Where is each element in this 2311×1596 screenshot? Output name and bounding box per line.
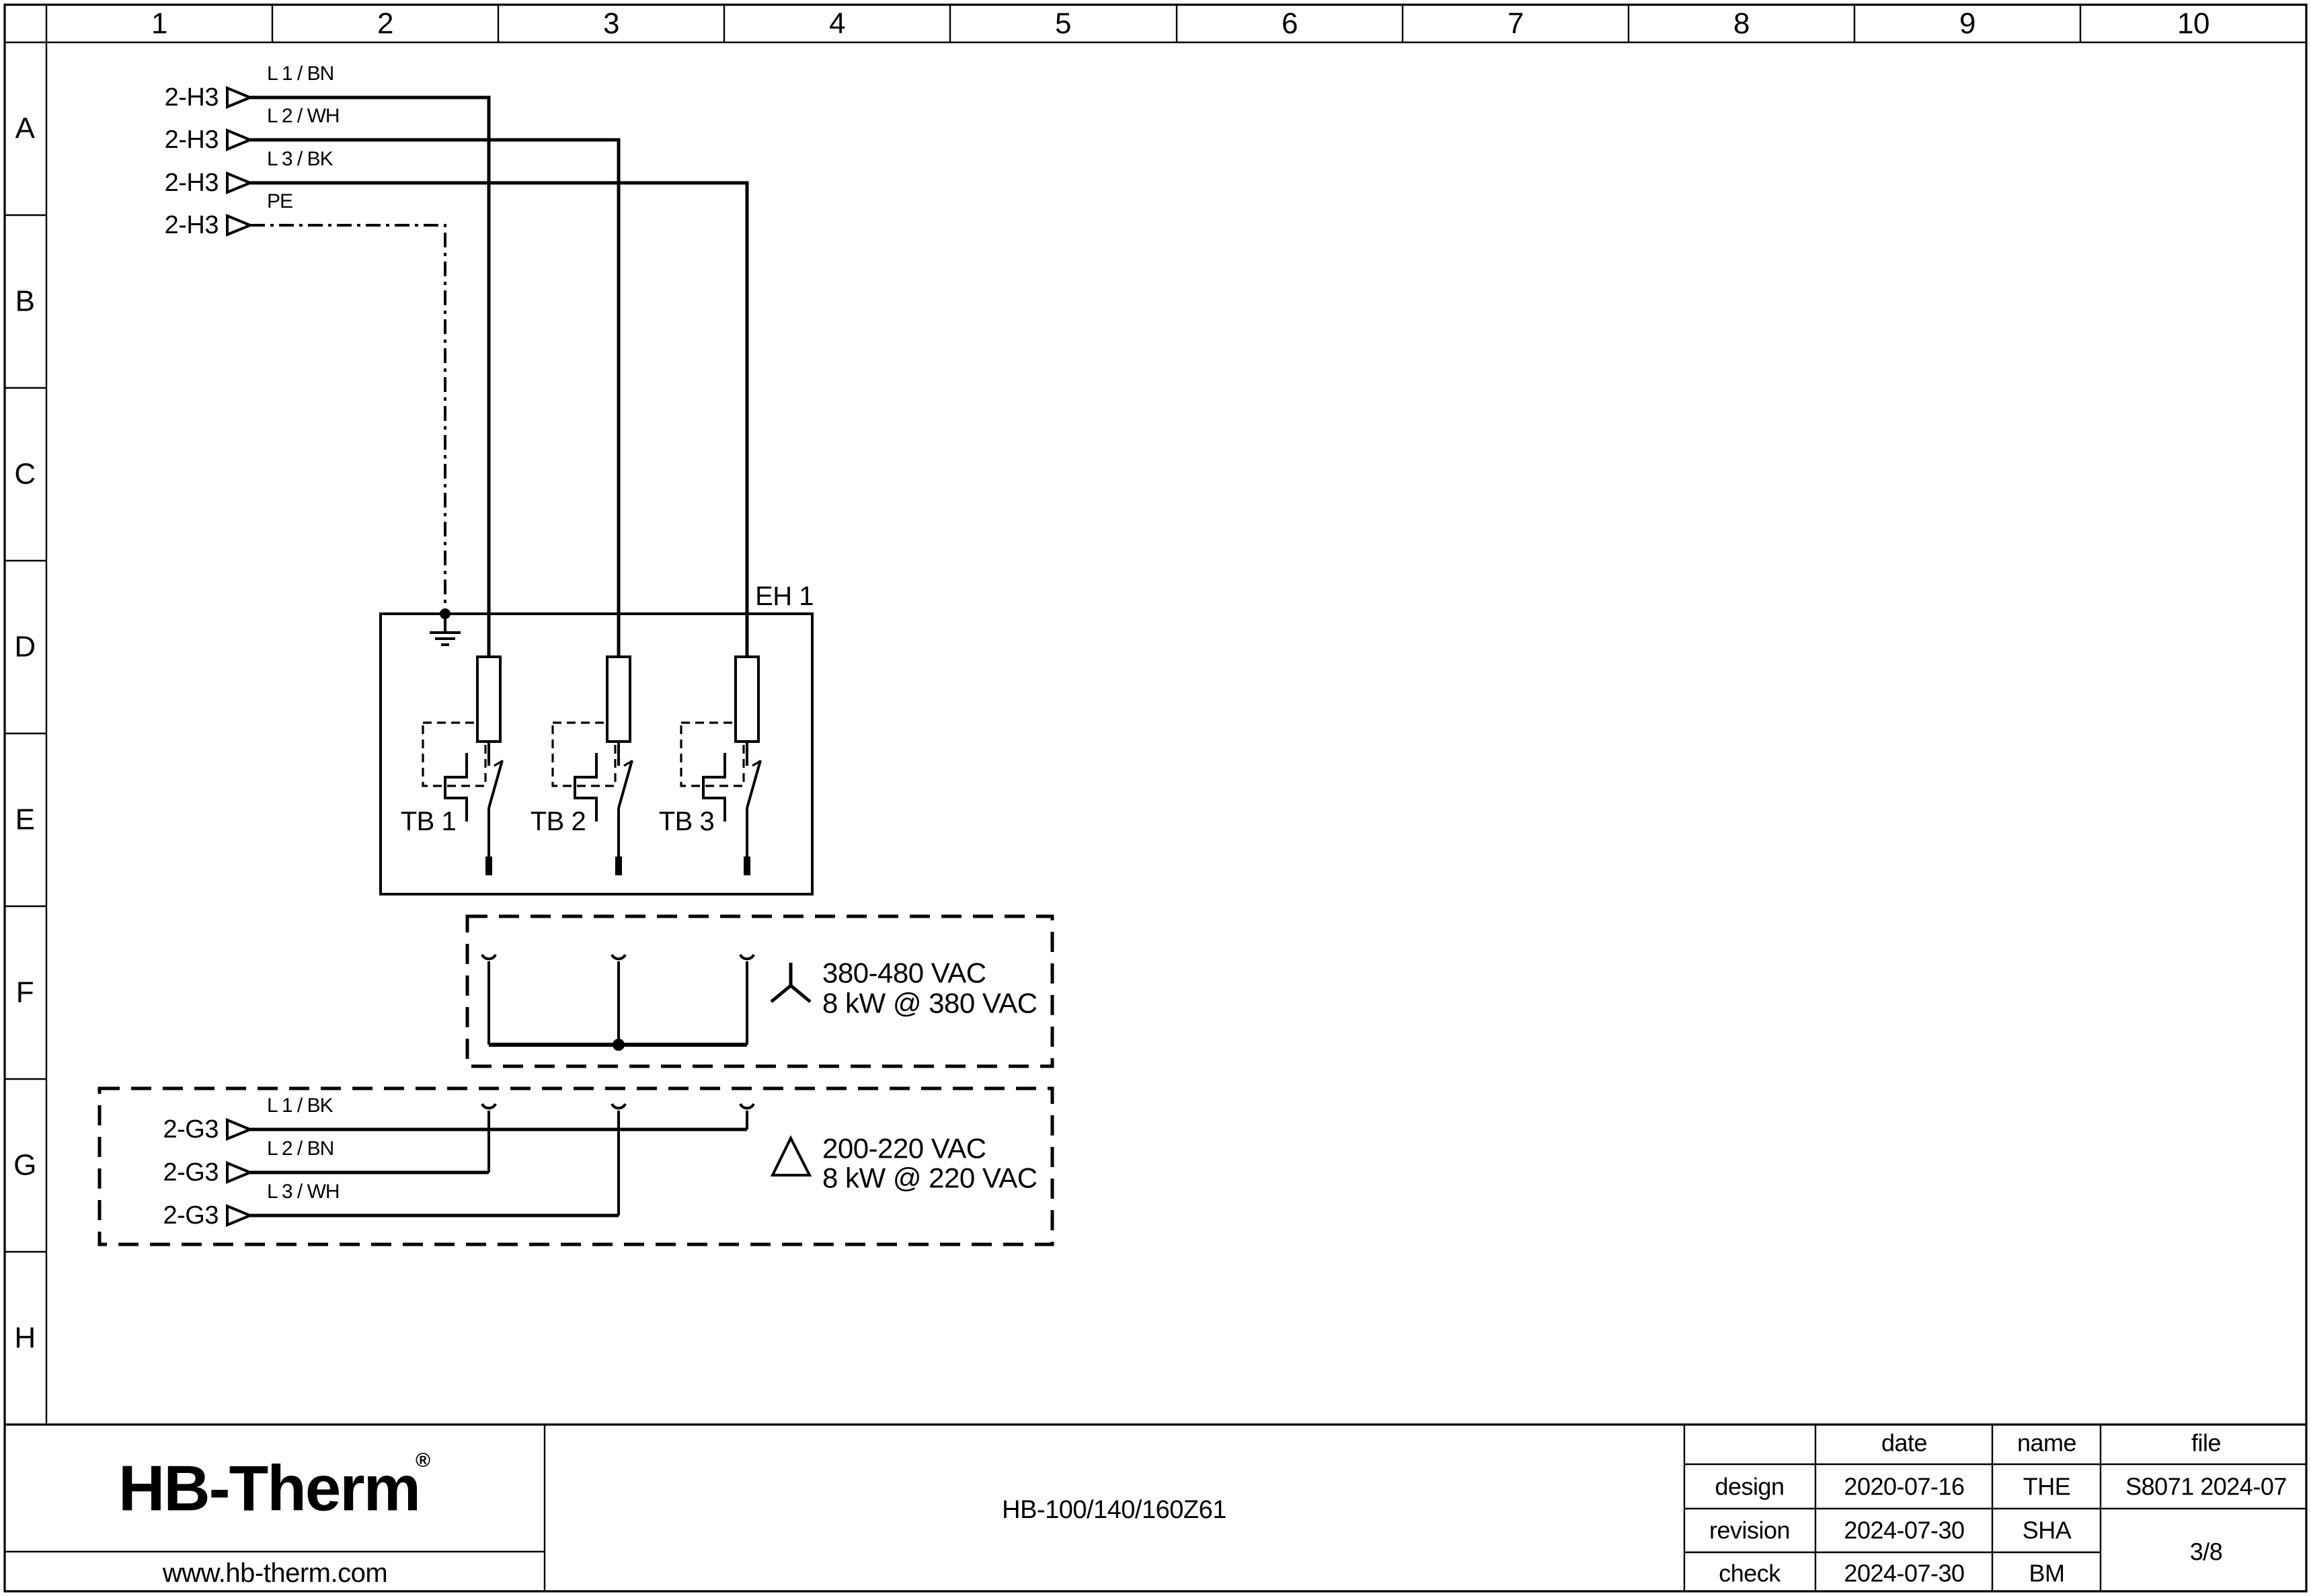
revision-date: 2024-07-30 <box>1844 1517 1964 1544</box>
feed-pe: 2-H3 PE <box>165 190 445 614</box>
drawing-title: HB-100/140/160Z61 <box>1002 1496 1226 1524</box>
col-label-6: 6 <box>1282 7 1298 40</box>
tb2-terminal <box>615 856 622 875</box>
heater-box-label: EH 1 <box>755 582 814 611</box>
delta-power: 8 kW @ 220 VAC <box>822 1162 1037 1194</box>
col-label-9: 9 <box>1959 7 1975 40</box>
table-header-file: file <box>2191 1429 2221 1457</box>
col-label-5: 5 <box>1055 7 1071 40</box>
tb3-switch-blade <box>747 760 760 808</box>
delta-feed-l1-label: L 1 / BK <box>267 1094 334 1117</box>
table-header-date: date <box>1881 1429 1927 1457</box>
check-date: 2024-07-30 <box>1844 1560 1964 1587</box>
tb2-label: TB 2 <box>531 807 586 836</box>
design-label: design <box>1715 1473 1784 1501</box>
design-date: 2020-07-16 <box>1844 1473 1964 1501</box>
ground-icon <box>430 614 461 645</box>
heater-element-1 <box>477 657 500 742</box>
socket-icon <box>612 955 625 959</box>
feed-l3-label: L 3 / BK <box>267 148 334 170</box>
connector-arrow-icon <box>227 173 250 192</box>
star-connection-box: 380-480 VAC 8 kW @ 380 VAC <box>467 916 1052 1066</box>
row-label-F: F <box>16 976 34 1009</box>
col-label-3: 3 <box>603 7 619 40</box>
table-row-check: check 2024-07-30 BM <box>1719 1560 2064 1587</box>
logo-text: HB-Therm <box>118 1453 420 1525</box>
company-logo: HB-Therm ® <box>118 1449 430 1525</box>
socket-icon <box>740 955 754 959</box>
schematic-canvas: 1 2 3 4 5 6 7 8 9 10 A B C D E F G H 2-H… <box>0 0 2311 1596</box>
wire-l2 <box>250 140 619 657</box>
check-label: check <box>1719 1560 1781 1587</box>
wye-icon <box>771 963 810 1002</box>
thermal-breaker-1: TB 1 <box>401 657 502 875</box>
heater-element-2 <box>607 657 630 742</box>
table-row-revision: revision 2024-07-30 SHA <box>1709 1517 2072 1544</box>
company-website: www.hb-therm.com <box>162 1558 387 1588</box>
tb3-terminal <box>744 856 750 875</box>
registered-mark-icon: ® <box>416 1449 430 1472</box>
delta-feed-l1-source: 2-G3 <box>163 1115 219 1144</box>
column-labels: 1 2 3 4 5 6 7 8 9 10 <box>151 7 2209 40</box>
thermal-breaker-2: TB 2 <box>531 657 632 875</box>
table-header-name: name <box>2017 1429 2076 1457</box>
row-label-A: A <box>15 112 36 145</box>
delta-feed-l2-label: L 2 / BN <box>267 1138 334 1160</box>
connector-arrow-icon <box>227 130 250 149</box>
feed-pe-source: 2-H3 <box>165 211 219 239</box>
connector-arrow-icon <box>227 216 250 235</box>
col-label-2: 2 <box>377 7 393 40</box>
tb3-label: TB 3 <box>659 807 714 836</box>
design-name: THE <box>2023 1473 2071 1501</box>
feed-l3-source: 2-H3 <box>165 169 219 197</box>
row-label-C: C <box>14 458 35 491</box>
star-voltage: 380-480 VAC <box>822 957 986 989</box>
page-number: 3/8 <box>2190 1538 2223 1566</box>
delta-sockets <box>482 1104 754 1215</box>
row-label-B: B <box>15 285 35 318</box>
socket-icon <box>482 1104 496 1108</box>
connector-arrow-icon <box>227 1206 250 1225</box>
socket-icon <box>612 1104 625 1108</box>
socket-icon <box>740 1104 754 1108</box>
delta-feed-l1: 2-G3 L 1 / BK <box>163 1094 747 1144</box>
socket-icon <box>482 955 496 959</box>
revision-name: SHA <box>2023 1517 2072 1544</box>
tb2-switch-blade <box>619 760 632 808</box>
feed-l2-label: L 2 / WH <box>267 105 340 127</box>
connector-arrow-icon <box>227 1163 250 1182</box>
tb1-switch-blade <box>489 760 502 808</box>
tb1-terminal <box>485 856 492 875</box>
connector-arrow-icon <box>227 1120 250 1139</box>
star-junction-dot <box>613 1039 625 1051</box>
delta-icon <box>773 1138 810 1175</box>
row-label-G: G <box>13 1149 36 1182</box>
col-label-10: 10 <box>2177 7 2209 40</box>
feed-l2-source: 2-H3 <box>165 126 219 154</box>
feed-l1-source: 2-H3 <box>165 83 219 112</box>
file-value: S8071 2024-07 <box>2125 1473 2287 1501</box>
col-label-1: 1 <box>151 7 167 40</box>
star-sockets <box>482 955 754 1045</box>
thermal-breaker-3: TB 3 <box>659 657 760 875</box>
wire-l3 <box>250 183 747 657</box>
tb1-label: TB 1 <box>401 807 456 836</box>
col-label-4: 4 <box>829 7 845 40</box>
feed-pe-label: PE <box>267 190 292 212</box>
row-label-H: H <box>14 1322 35 1355</box>
drawing-frame: 1 2 3 4 5 6 7 8 9 10 A B C D E F G H <box>5 5 2306 1591</box>
col-label-8: 8 <box>1733 7 1750 40</box>
delta-feed-l3-label: L 3 / WH <box>267 1181 340 1203</box>
col-label-7: 7 <box>1507 7 1524 40</box>
delta-feed-l3-source: 2-G3 <box>163 1201 219 1230</box>
row-label-D: D <box>14 631 35 664</box>
connector-arrow-icon <box>227 88 250 107</box>
title-block: HB-Therm ® www.hb-therm.com HB-100/140/1… <box>5 1425 2306 1591</box>
heater-element-3 <box>736 657 758 742</box>
delta-voltage: 200-220 VAC <box>822 1133 986 1164</box>
revision-label: revision <box>1709 1517 1790 1544</box>
column-dividers <box>272 5 2080 42</box>
table-row-design: design 2020-07-16 THE S8071 2024-07 <box>1715 1473 2286 1501</box>
star-power: 8 kW @ 380 VAC <box>822 988 1037 1019</box>
supply-feeds: 2-H3 L 1 / BN 2-H3 L 2 / WH 2-H3 L 3 / B… <box>165 63 747 657</box>
row-dividers <box>5 215 46 1252</box>
schematic-page: 1 2 3 4 5 6 7 8 9 10 A B C D E F G H 2-H… <box>0 0 2311 1596</box>
row-label-E: E <box>15 803 35 836</box>
delta-feed-l2-source: 2-G3 <box>163 1158 219 1187</box>
feed-l1-label: L 1 / BN <box>267 63 334 85</box>
outer-border <box>5 5 2306 1591</box>
delta-feed-l3: 2-G3 L 3 / WH <box>163 1181 619 1230</box>
check-name: BM <box>2029 1560 2065 1587</box>
wire-pe <box>250 225 445 614</box>
delta-connection-box: 2-G3 L 1 / BK 2-G3 L 2 / BN 2-G3 L 3 / W… <box>100 1088 1052 1244</box>
delta-feed-l2: 2-G3 L 2 / BN <box>163 1138 489 1187</box>
